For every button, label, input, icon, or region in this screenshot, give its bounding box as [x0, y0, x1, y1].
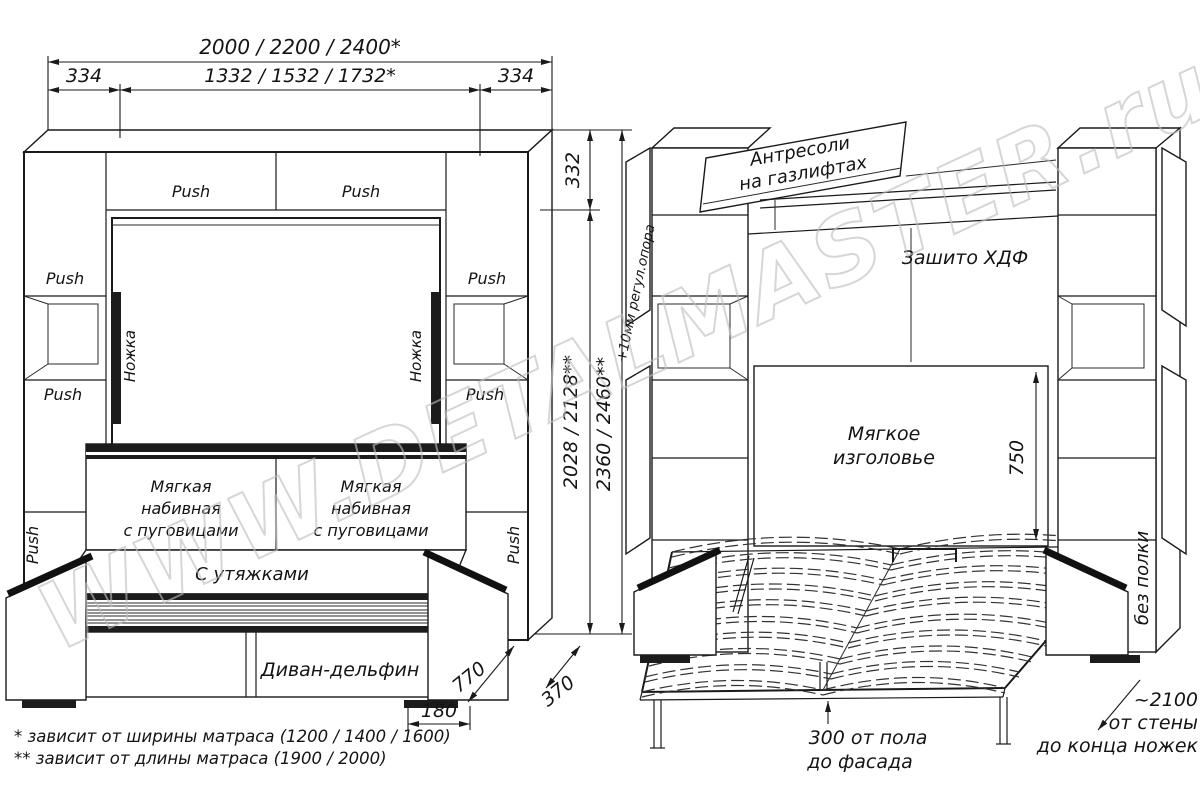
headboard-label-line1: Мягкое	[848, 423, 921, 445]
fold-leg-strip-left	[112, 292, 121, 424]
dim-top-section-height: 332	[562, 152, 584, 188]
footnote-width: * зависит от ширины матраса (1200 / 1400…	[14, 727, 451, 746]
dim-foot-offset: 180	[421, 700, 457, 722]
push-label-side-right: Push	[504, 526, 523, 564]
dim-side-left: 334	[66, 65, 102, 87]
open-door-right-top	[1162, 148, 1186, 326]
footnote-length: ** зависит от длины матраса (1900 / 2000…	[14, 749, 387, 768]
wall-bed-diagram: 2000 / 2200 / 2400* 334 1332 / 1532 / 17…	[0, 0, 1200, 800]
dim-side-right: 334	[498, 65, 534, 87]
wall-distance-line1: ~2100	[1134, 689, 1198, 711]
fold-leg-label-right: Ножка	[407, 330, 425, 382]
dim-inner-width: 1332 / 1532 / 1732*	[204, 65, 396, 87]
wall-distance-line2: от стены	[1109, 712, 1198, 734]
dim-headboard-height: 750	[1006, 440, 1028, 476]
push-label-left-upper: Push	[46, 269, 84, 288]
open-door-right-bottom	[1162, 366, 1186, 554]
wall-distance-line3: до конца ножек	[1036, 735, 1199, 757]
push-label-flap-right: Push	[342, 182, 380, 201]
foot-pad-left	[22, 700, 76, 708]
no-shelf-label: без полки	[1132, 531, 1153, 626]
dim-total-width: 2000 / 2200 / 2400*	[199, 35, 401, 59]
push-label-left-lower: Push	[44, 385, 82, 404]
push-label-flap-left: Push	[172, 182, 210, 201]
fold-leg-label-left: Ножка	[121, 330, 139, 382]
technical-drawing-page: 2000 / 2200 / 2400* 334 1332 / 1532 / 17…	[0, 0, 1200, 800]
floor-clearance-line1: 300 от пола	[809, 727, 928, 749]
headboard-label-line2: изголовье	[833, 447, 935, 469]
push-label-side-left: Push	[23, 526, 42, 564]
floor-clearance-line2: до фасада	[806, 751, 913, 773]
push-label-right-upper: Push	[468, 269, 506, 288]
dim-cabinet-depth: 370	[537, 671, 579, 711]
base-label: Диван-дельфин	[260, 659, 420, 681]
cabinet-top-face	[24, 130, 552, 152]
